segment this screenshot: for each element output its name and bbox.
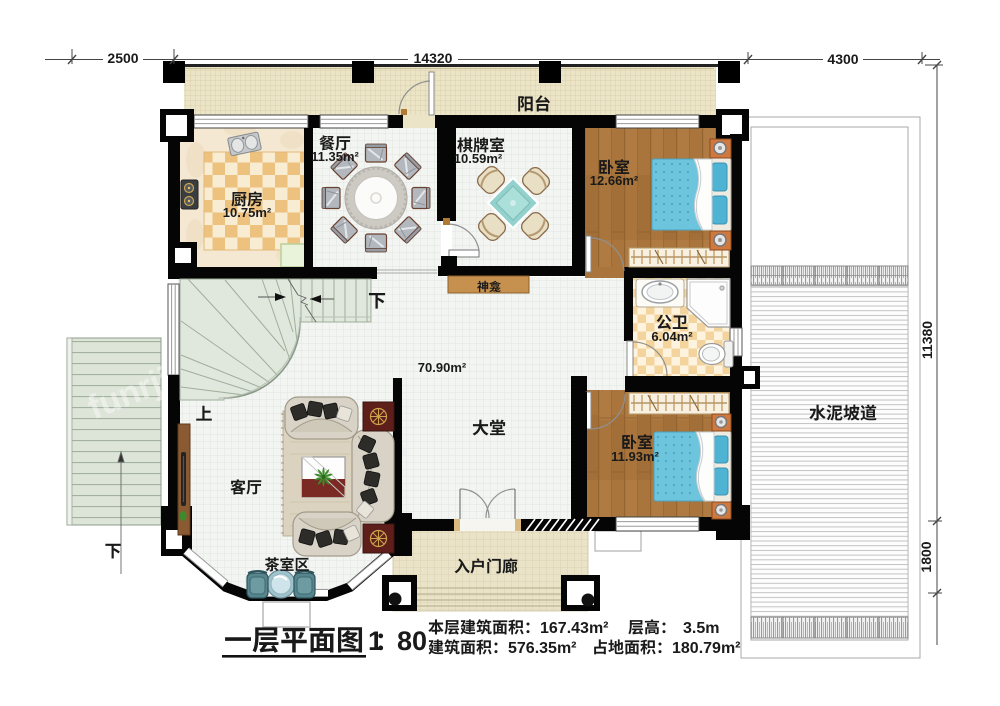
svg-text:1: 1 [368, 626, 383, 656]
svg-text:2500: 2500 [107, 50, 138, 66]
svg-text:70.90m²: 70.90m² [418, 360, 467, 375]
svg-text:10.59m²: 10.59m² [454, 151, 503, 166]
svg-text:11.35m²: 11.35m² [311, 149, 359, 164]
svg-text:4300: 4300 [827, 51, 858, 67]
svg-text:10.75m²: 10.75m² [223, 205, 272, 220]
svg-text:3.5m: 3.5m [683, 620, 719, 637]
svg-text:1800: 1800 [918, 541, 934, 572]
svg-text:180.79m²: 180.79m² [672, 640, 741, 657]
svg-text:80: 80 [397, 626, 427, 656]
svg-text:576.35m²: 576.35m² [508, 640, 577, 657]
svg-text:11.93m²: 11.93m² [611, 449, 659, 464]
svg-text:12.66m²: 12.66m² [590, 173, 639, 188]
svg-text:14320: 14320 [414, 50, 453, 66]
svg-text:6.04m²: 6.04m² [651, 329, 693, 344]
svg-text:167.43m²: 167.43m² [540, 620, 609, 637]
svg-text:11380: 11380 [919, 321, 935, 359]
